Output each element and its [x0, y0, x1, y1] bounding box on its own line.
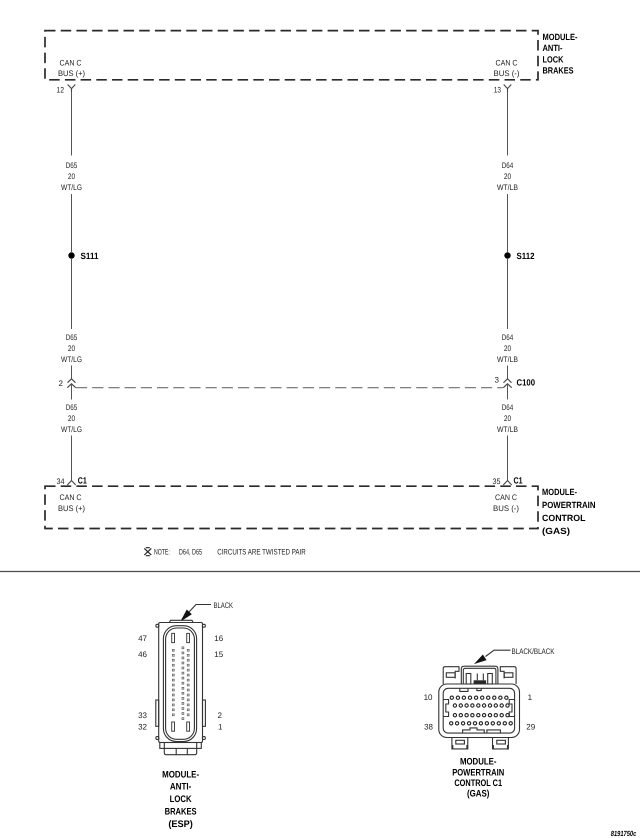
svg-text:CAN C: CAN C [496, 59, 518, 68]
svg-text:3: 3 [495, 376, 500, 385]
svg-text:LOCK: LOCK [543, 54, 564, 64]
svg-text:15: 15 [214, 650, 223, 659]
svg-text:WT/LB: WT/LB [497, 425, 518, 434]
svg-text:20: 20 [68, 414, 76, 423]
svg-text:C100: C100 [517, 378, 536, 388]
svg-text:C1: C1 [78, 476, 87, 486]
svg-text:CONTROL: CONTROL [542, 513, 586, 523]
svg-text:38: 38 [424, 723, 433, 732]
svg-text:BRAKES: BRAKES [165, 807, 197, 818]
svg-text:BLACK: BLACK [214, 601, 234, 610]
svg-text:D64, D65: D64, D65 [179, 548, 202, 557]
svg-text:WT/LG: WT/LG [61, 355, 82, 364]
svg-text:33: 33 [138, 711, 147, 720]
svg-text:POWERTRAIN: POWERTRAIN [542, 500, 596, 510]
svg-text:CAN C: CAN C [60, 493, 82, 502]
svg-text:13: 13 [494, 86, 502, 95]
svg-text:2: 2 [218, 711, 223, 720]
svg-text:D64: D64 [502, 333, 514, 342]
svg-text:35: 35 [493, 477, 501, 486]
svg-text:BUS (+): BUS (+) [58, 69, 85, 78]
svg-text:MODULE-: MODULE- [542, 487, 577, 497]
svg-text:1: 1 [528, 693, 533, 702]
svg-text:D65: D65 [66, 161, 78, 170]
svg-text:CIRCUITS ARE TWISTED PAIR: CIRCUITS ARE TWISTED PAIR [217, 548, 306, 557]
svg-text:12: 12 [56, 86, 64, 95]
svg-text:MODULE-: MODULE- [460, 756, 497, 767]
svg-text:WT/LB: WT/LB [497, 355, 518, 364]
svg-text:CAN C: CAN C [60, 59, 82, 68]
svg-text:20: 20 [504, 344, 512, 353]
svg-text:CAN C: CAN C [495, 493, 517, 502]
svg-text:MODULE-: MODULE- [162, 769, 199, 780]
svg-text:ANTI-: ANTI- [170, 782, 192, 793]
svg-text:8191750c: 8191750c [611, 829, 637, 838]
svg-text:(GAS): (GAS) [467, 789, 490, 800]
svg-text:WT/LB: WT/LB [497, 183, 518, 192]
svg-text:C1: C1 [514, 476, 523, 486]
svg-text:46: 46 [138, 650, 147, 659]
svg-text:(GAS): (GAS) [542, 526, 570, 536]
svg-text:S111: S111 [81, 251, 99, 261]
svg-text:D64: D64 [502, 161, 514, 170]
svg-text:BUS (-): BUS (-) [494, 69, 520, 78]
svg-text:10: 10 [424, 693, 433, 702]
svg-text:ANTI-: ANTI- [543, 43, 563, 53]
svg-text:20: 20 [68, 344, 76, 353]
svg-text:20: 20 [68, 172, 76, 181]
svg-text:BRAKES: BRAKES [543, 66, 574, 76]
svg-text:MODULE-: MODULE- [543, 32, 578, 42]
svg-text:NOTE:: NOTE: [154, 548, 170, 557]
svg-text:1: 1 [218, 722, 223, 731]
svg-text:WT/LG: WT/LG [61, 183, 82, 192]
svg-text:POWERTRAIN: POWERTRAIN [452, 767, 504, 778]
svg-text:16: 16 [214, 634, 223, 643]
svg-text:LOCK: LOCK [170, 794, 192, 805]
svg-text:29: 29 [526, 723, 535, 732]
svg-text:34: 34 [57, 477, 65, 486]
svg-text:BUS (-): BUS (-) [493, 504, 519, 513]
svg-text:D65: D65 [66, 333, 78, 342]
svg-text:WT/LG: WT/LG [61, 425, 82, 434]
svg-text:32: 32 [138, 722, 147, 731]
svg-text:CONTROL C1: CONTROL C1 [454, 778, 502, 789]
svg-text:20: 20 [504, 414, 512, 423]
svg-text:20: 20 [504, 172, 512, 181]
svg-text:2: 2 [59, 379, 64, 388]
svg-text:D64: D64 [502, 403, 514, 412]
svg-text:BLACK/BLACK: BLACK/BLACK [512, 647, 556, 656]
svg-text:D65: D65 [66, 403, 78, 412]
svg-text:S112: S112 [517, 251, 535, 261]
svg-text:(ESP): (ESP) [168, 819, 193, 830]
svg-text:BUS (+): BUS (+) [58, 504, 85, 513]
svg-text:47: 47 [138, 634, 147, 643]
